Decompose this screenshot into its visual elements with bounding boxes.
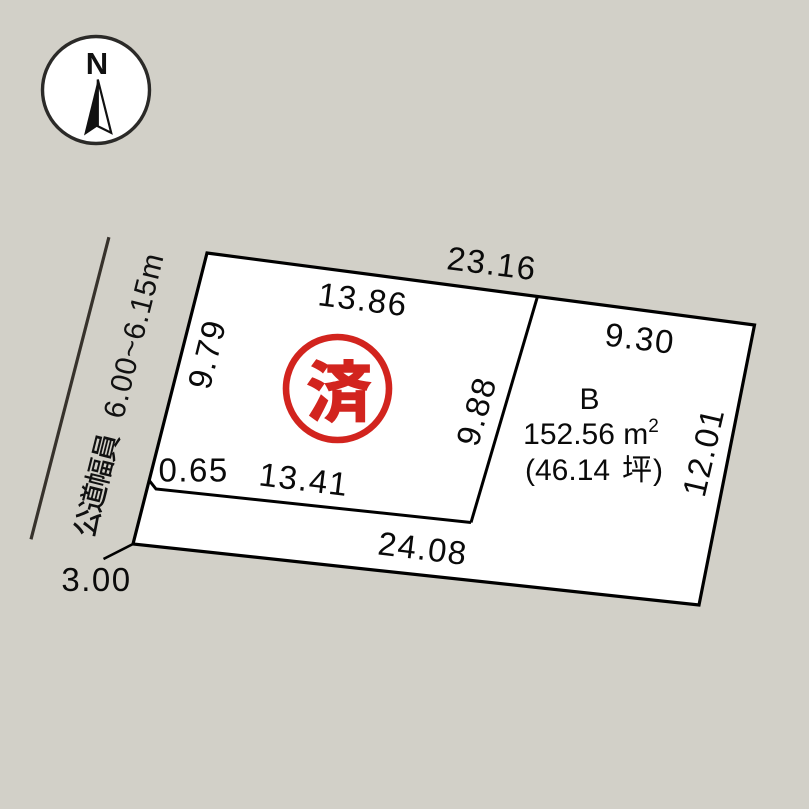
svg-text:3.00: 3.00	[61, 561, 131, 598]
svg-text:): )	[653, 454, 663, 487]
svg-text:N: N	[86, 46, 108, 81]
svg-text:152.56 m2: 152.56 m2	[523, 416, 659, 451]
svg-text:0.65: 0.65	[158, 451, 228, 488]
svg-text:(46.14: (46.14	[525, 454, 610, 487]
svg-text:B: B	[579, 383, 599, 416]
